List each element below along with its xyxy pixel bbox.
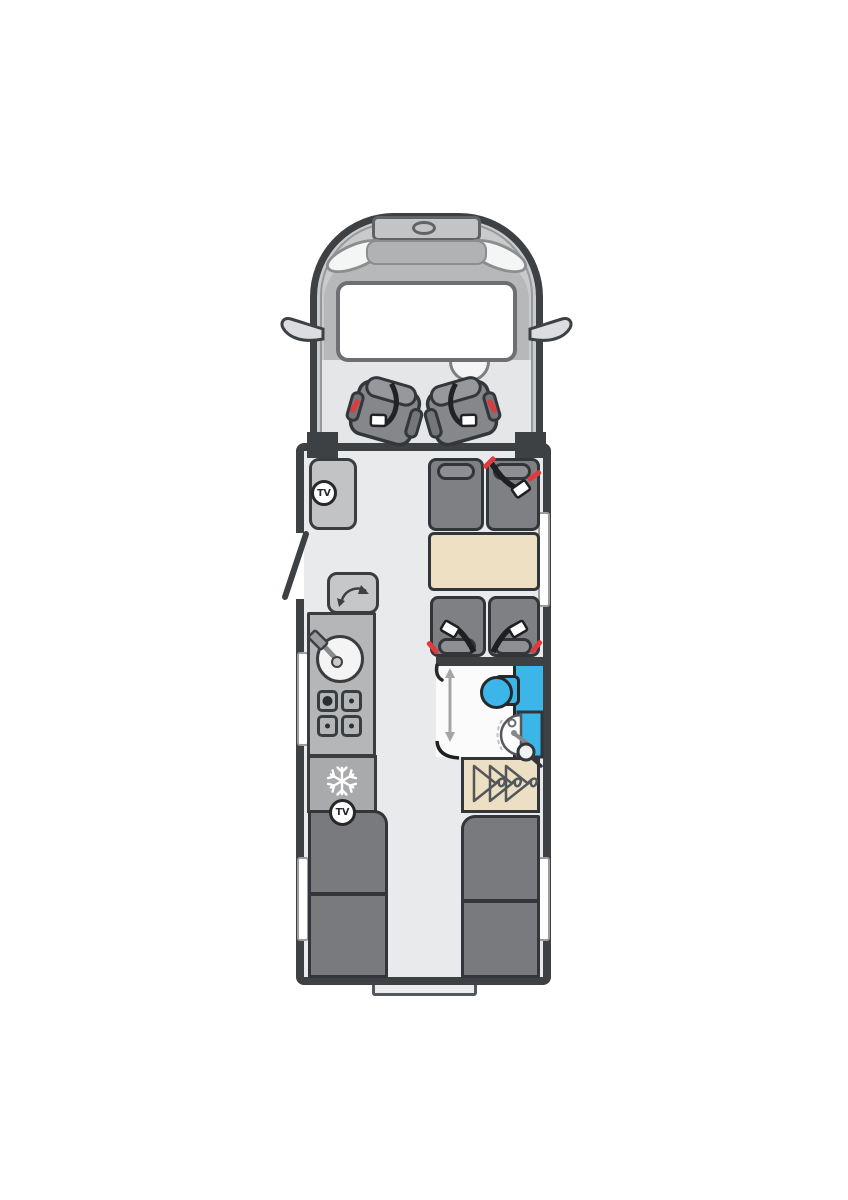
snowflake-icon xyxy=(328,768,356,795)
coat-hanger-icons xyxy=(474,766,537,801)
sliding-door-arrow-icon xyxy=(445,668,455,742)
floorplan-canvas: TV TV xyxy=(0,0,848,1200)
wing-mirror-right-icon xyxy=(530,319,571,341)
basin-drain xyxy=(509,720,516,727)
entry-door-leaf xyxy=(285,534,306,597)
flap-swing-arrow-icon xyxy=(337,585,369,607)
washroom-door-arc xyxy=(437,741,459,758)
belt-front-right-seat xyxy=(482,456,542,499)
wing-mirror-left-icon xyxy=(282,319,323,341)
washroom-wall-corner xyxy=(437,665,442,680)
belt-rear-left-seat xyxy=(426,620,474,655)
overlay-icons xyxy=(0,0,848,1200)
cab-seat-left xyxy=(343,372,428,449)
sink-tap-icon xyxy=(308,630,342,667)
belt-rear-right-seat xyxy=(493,620,543,654)
cab-seat-right xyxy=(419,372,504,449)
shower-head-icon xyxy=(518,744,541,766)
hob-dots xyxy=(323,696,355,729)
